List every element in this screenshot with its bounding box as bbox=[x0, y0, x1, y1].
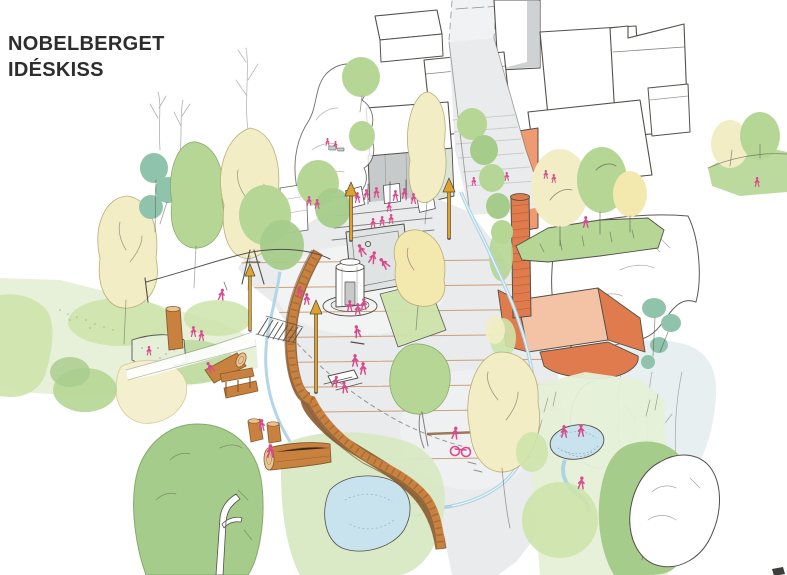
logs-small bbox=[248, 419, 281, 443]
page-title: NOBELBERGET IDÉSKISS bbox=[8, 31, 165, 83]
tree-green-left bbox=[170, 142, 223, 248]
tree-green-hill-small bbox=[349, 121, 375, 151]
factory-roof bbox=[518, 288, 608, 352]
title-line-1: NOBELBERGET bbox=[8, 31, 165, 57]
log-standing bbox=[166, 306, 183, 350]
idea-sketch-page: NOBELBERGET IDÉSKISS bbox=[0, 0, 787, 575]
building-block-e bbox=[648, 84, 690, 136]
tree-yellow-street bbox=[407, 92, 446, 203]
rooftop-tree-yellow-small bbox=[613, 171, 647, 217]
idea-sketch-illustration bbox=[0, 0, 787, 575]
tree-green-top bbox=[342, 57, 380, 97]
canopy-green-bottom-left bbox=[134, 424, 263, 575]
corner-mark bbox=[772, 567, 785, 575]
person-figure bbox=[218, 288, 225, 300]
right-edge-slope bbox=[708, 112, 787, 196]
title-line-2: IDÉSKISS bbox=[8, 57, 165, 83]
street-top-strip bbox=[449, 0, 497, 42]
